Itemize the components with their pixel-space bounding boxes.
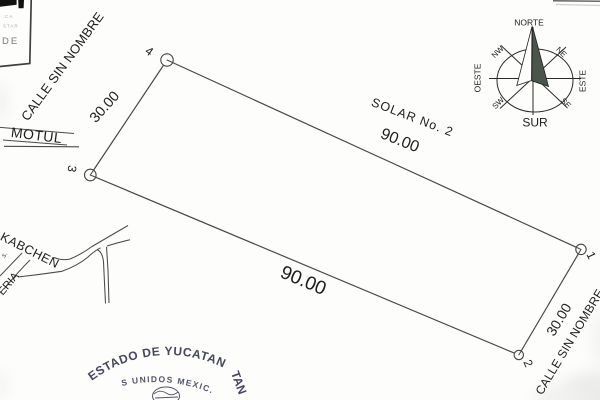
svg-text:NORTE: NORTE (514, 18, 544, 28)
svg-text:SUR: SUR (522, 116, 548, 130)
svg-text::CA: :CA (3, 14, 14, 19)
svg-text:OESTE: OESTE (473, 63, 483, 92)
svg-text:DE: DE (2, 36, 19, 47)
svg-text:STAR: STAR (3, 24, 19, 29)
svg-text:ESTE: ESTE (578, 70, 588, 93)
